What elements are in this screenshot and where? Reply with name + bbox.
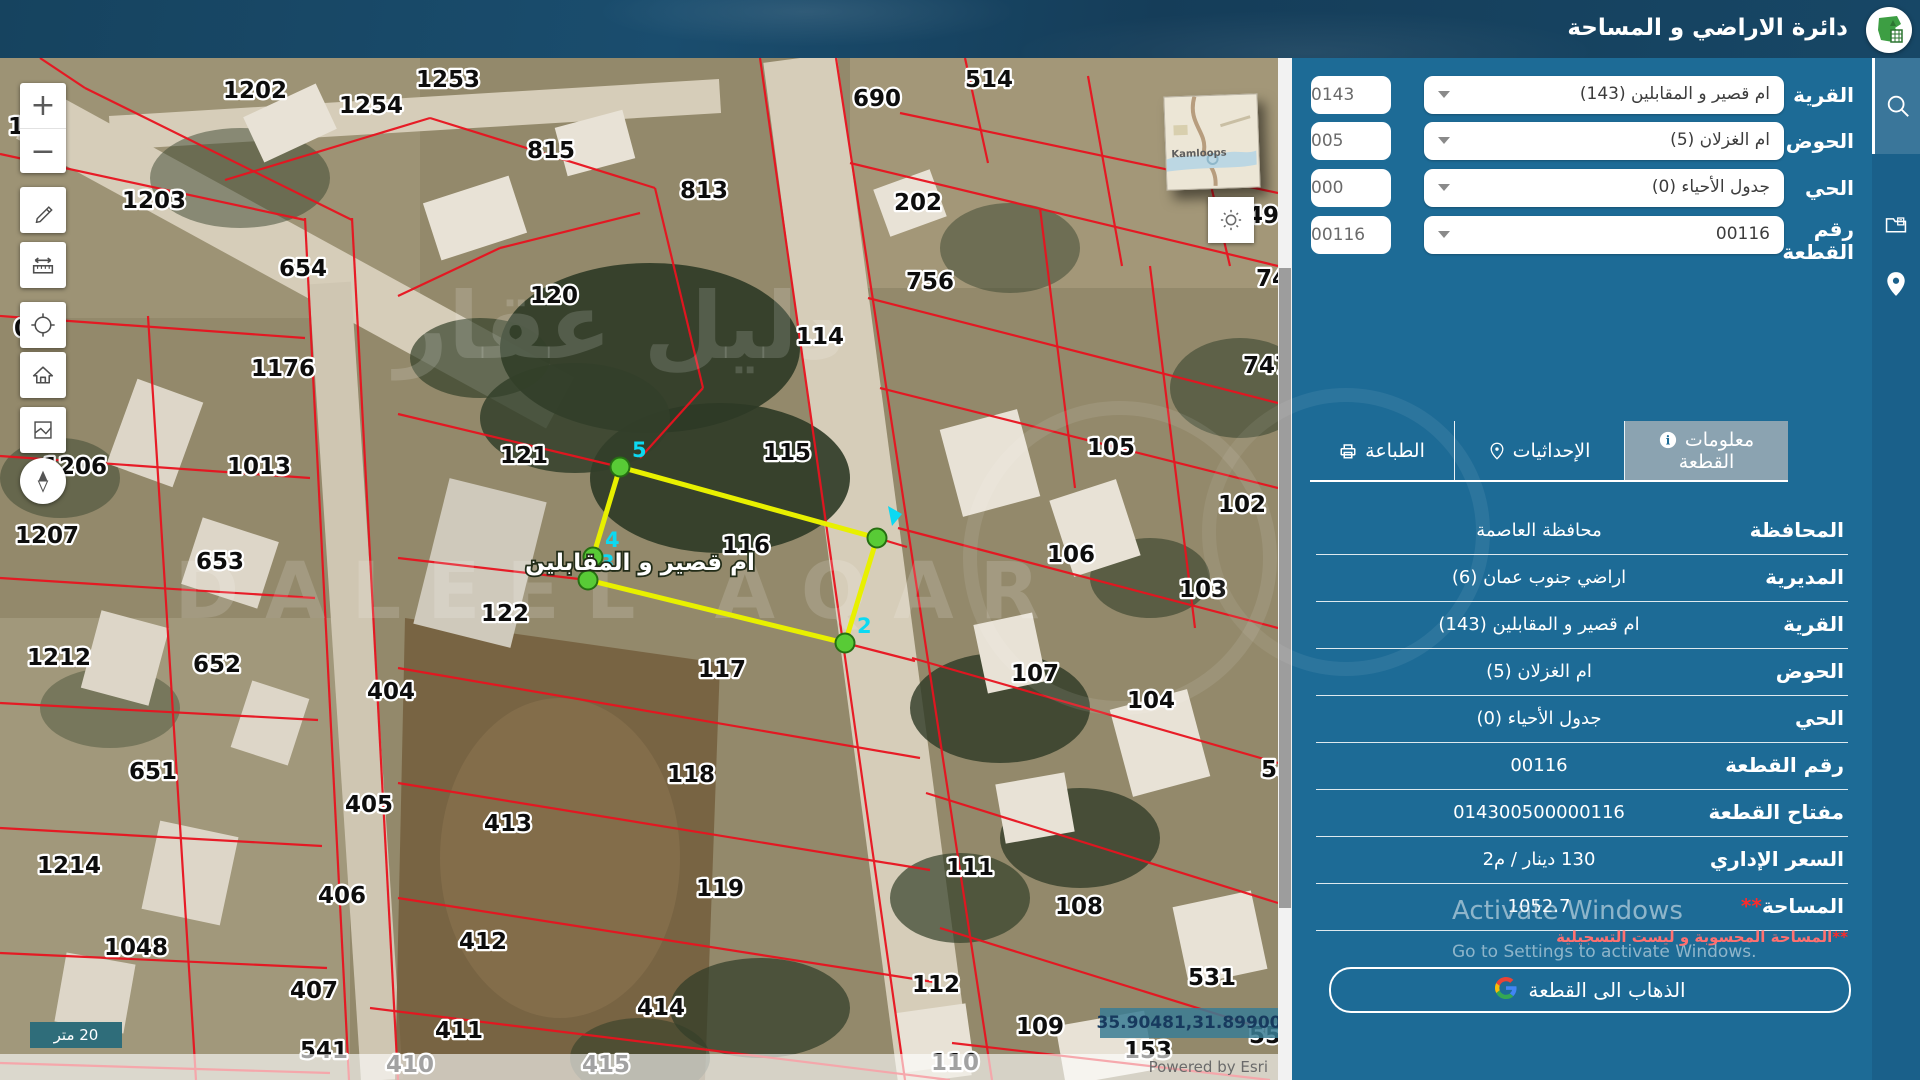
measure-button[interactable] [20,242,66,288]
parcel-number-label: 1203 [122,188,186,214]
table-row: الحيجدول الأحياء (0) [1316,696,1848,743]
scale-bar: 20 متر [30,1022,122,1048]
parcel-number-label: 404 [367,679,415,705]
zoom-out-button[interactable]: − [20,129,66,174]
parcel-number-label: 653 [196,549,244,575]
parcel-number-label: 414 [637,995,685,1021]
parcel-number-label: 105 [1087,435,1135,461]
location-tool-button[interactable] [1872,260,1920,308]
department-logo-icon [1866,7,1912,53]
chevron-down-icon [1438,184,1450,191]
powered-by-esri: Powered by Esri [1149,1058,1268,1076]
row-value: 014300500000116 [1356,802,1722,823]
row-label: رقم القطعة [1725,753,1844,777]
row-value: 00116 [1356,755,1722,776]
parcel-number-label: 115 [763,440,811,466]
parcel-number-label: 542 [1261,757,1278,783]
tab-coordinates[interactable]: الإحداثيات [1455,421,1625,480]
chevron-down-icon [1438,231,1450,238]
parcel-number-select[interactable]: 00116 [1424,216,1784,254]
parcel-number-label: 114 [796,324,844,350]
parcel-number-label: 121 [500,443,548,469]
chevron-down-icon [1438,137,1450,144]
parcel-number-label: 514 [965,67,1013,93]
row-label: القرية [1783,612,1844,636]
parcel-number-label: 104 [1127,688,1175,714]
row-label: السعر الإداري [1710,847,1844,871]
parcel-number-label: 412 [459,929,507,955]
row-label: الحي [1795,706,1844,730]
selected-parcel-name-label: ام قصير و المقابلين [525,550,755,576]
activate-line1: Activate Windows [1452,896,1757,926]
google-g-icon [1494,976,1518,1005]
app-title: دائرة الاراضي و المساحة [1567,15,1848,41]
tab-parcel-info-line1: معلومات [1685,429,1754,451]
compass-button[interactable] [20,458,66,504]
measure-icon [29,251,57,279]
satellite-map: دليل عقار DALEEL AQAR 5234 1202125412536… [0,58,1278,1080]
vertex-number-label: 2 [857,614,872,638]
parcel-number-label: 111 [946,855,994,881]
row-value: ام الغزلان (5) [1356,661,1722,682]
folder-icon [1884,212,1908,236]
parcel-number-label: 815 [527,138,575,164]
parcel-number-label: 413 [484,811,532,837]
parcel-number-label: 1253 [416,67,480,93]
district-select[interactable]: جدول الأحياء (0) [1424,169,1784,207]
map-attribution: Powered by Esri [0,1054,1278,1080]
basemap-icon [30,417,56,443]
parcel-number-label: 120 [530,283,578,309]
parcel-number-label: 122 [481,601,529,627]
footnote-asterisks: ** [1832,928,1848,946]
right-toolbar [1872,58,1920,1080]
table-row: مفتاح القطعة014300500000116 [1316,790,1848,837]
parcel-vertex-handle[interactable] [836,634,855,653]
parcel-number-label: 119 [696,876,744,902]
district-code-field[interactable]: 000 [1311,169,1391,207]
district-select-value: جدول الأحياء (0) [1652,177,1770,197]
tab-parcel-info-line2: القطعة [1679,451,1735,473]
basin-select[interactable]: ام الغزلان (5) [1424,122,1784,160]
overview-inset-map[interactable]: Kamloops [1163,93,1260,190]
row-value: جدول الأحياء (0) [1356,708,1722,729]
location-pin-icon [1489,442,1505,460]
parcel-vertex-handle[interactable] [611,458,630,477]
parcel-number-label: 109 [1016,1014,1064,1040]
search-tool-button[interactable] [1872,58,1920,154]
chevron-down-icon [1438,91,1450,98]
pencil-icon [30,197,56,223]
parcel-number-label: 813 [680,178,728,204]
parcel-number-label: 1048 [104,935,168,961]
vertex-number-label: 5 [632,438,647,462]
village-select[interactable]: ام قصير و المقابلين (143) [1424,76,1784,114]
inset-map-graphic [1164,94,1257,187]
app-root: دائرة الاراضي و المساحة [0,0,1920,1080]
parcel-number-label: 1176 [251,356,315,382]
locate-button[interactable] [20,302,66,348]
crosshair-icon [29,311,57,339]
go-to-parcel-label: الذهاب الى القطعة [1528,978,1685,1002]
basin-select-value: ام الغزلان (5) [1670,130,1770,150]
parcel-number-label: 202 [894,190,942,216]
go-to-parcel-button[interactable]: الذهاب الى القطعة [1329,967,1851,1013]
row-label: مفتاح القطعة [1709,800,1845,824]
tab-parcel-info[interactable]: i معلومات القطعة [1625,421,1788,480]
parcel-number-code-field[interactable]: 00116 [1311,216,1391,254]
basin-code-field[interactable]: 005 [1311,122,1391,160]
tab-print-label: الطباعة [1365,440,1425,462]
svg-text:i: i [1666,433,1671,447]
parcel-info-table: المحافظةمحافظة العاصمة المديريةاراضي جنو… [1316,508,1848,931]
brightness-button[interactable] [1208,197,1254,243]
parcel-number-label: 118 [667,762,715,788]
search-icon [1885,93,1911,119]
basemap-button[interactable] [20,407,66,453]
row-label: الحوض [1776,659,1844,683]
zoom-control: + − [20,83,66,173]
parcel-number-label: 1013 [227,454,291,480]
parcel-number-label: 756 [906,269,954,295]
draw-button[interactable] [20,187,66,233]
parcel-number-label: 690 [853,86,901,112]
parcel-number-label: 405 [345,792,393,818]
home-icon [29,361,57,389]
info-icon: i [1659,431,1677,449]
row-value: 130 دينار / م2 [1356,849,1722,870]
archive-tool-button[interactable] [1872,200,1920,248]
village-code-field[interactable]: 0143 [1311,76,1391,114]
parcel-number-label: 652 [193,652,241,678]
parcel-number-label: 108 [1055,894,1103,920]
printer-icon [1339,442,1357,460]
parcel-number-label: 112 [912,972,960,998]
location-pin-icon [1885,271,1907,297]
table-row: رقم القطعة00116 [1316,743,1848,790]
table-row: المحافظةمحافظة العاصمة [1316,508,1848,555]
area-footnote: **المساحة المحسوبة و ليست التسجيلية [1556,928,1848,946]
parcel-number-label: 748 [1256,266,1278,292]
row-label: المديرية [1765,565,1844,589]
parcel-number-label: 1202 [223,78,287,104]
parcel-number-label: 1207 [15,523,79,549]
row-label: المحافظة [1750,518,1844,542]
parcel-number-label: 411 [435,1018,483,1044]
parcel-search-panel: القرية ام قصير و المقابلين (143) 0143 ال… [1292,58,1872,1080]
home-button[interactable] [20,352,66,398]
parcel-number-label: 1214 [37,853,101,879]
parcel-number-label: 651 [129,759,177,785]
coordinates-readout: 35.90481,31.89900 [1100,1008,1278,1038]
parcel-number-label: 1254 [339,93,403,119]
parcel-number-label: 531 [1188,965,1236,991]
village-select-value: ام قصير و المقابلين (143) [1580,84,1770,104]
row-value: محافظة العاصمة [1356,520,1722,541]
parcel-number-label: 106 [1047,542,1095,568]
zoom-in-button[interactable]: + [20,83,66,129]
map-watermark-arabic: دليل عقار [391,273,845,380]
sun-icon [1217,206,1245,234]
parcel-number-label: 747 [1243,353,1278,379]
map-area[interactable]: دليل عقار DALEEL AQAR 5234 1202125412536… [0,58,1278,1080]
tab-coordinates-label: الإحداثيات [1513,440,1591,462]
tab-print[interactable]: الطباعة [1310,421,1455,480]
parcel-number-label: 1212 [27,645,91,671]
parcel-number-label: 654 [279,256,327,282]
inset-map-label: Kamloops [1171,148,1227,161]
app-header: دائرة الاراضي و المساحة [0,0,1920,58]
parcel-vertex-handle[interactable] [868,529,887,548]
table-row: الحوضام الغزلان (5) [1316,649,1848,696]
table-row: السعر الإداري130 دينار / م2 [1316,837,1848,884]
row-value: اراضي جنوب عمان (6) [1356,567,1722,588]
parcel-number-select-value: 00116 [1716,224,1770,244]
parcel-number-label: 407 [290,978,338,1004]
parcel-number-label: 107 [1011,661,1059,687]
table-row: القريةام قصير و المقابلين (143) [1316,602,1848,649]
vertex-number-label: 4 [605,528,620,552]
row-value: ام قصير و المقابلين (143) [1356,614,1722,635]
table-row: المديريةاراضي جنوب عمان (6) [1316,555,1848,602]
compass-needle-icon [28,466,58,496]
panel-tabs: i معلومات القطعة الإحداثيات [1310,421,1788,482]
parcel-number-label: 406 [318,883,366,909]
parcel-number-label: 117 [698,657,746,683]
